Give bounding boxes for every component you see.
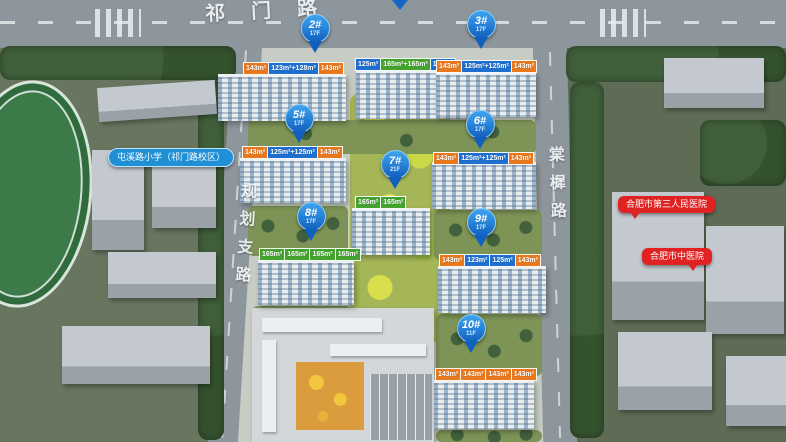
poi-label-hospital-tcm[interactable]: 合肥市中医院 xyxy=(642,248,712,265)
green-strip xyxy=(436,430,542,442)
area-tag[interactable]: 123m² xyxy=(464,254,490,267)
pin-building-9[interactable]: 9# 17F xyxy=(466,208,496,248)
building-9 xyxy=(438,266,546,313)
area-tag[interactable]: 143m² xyxy=(511,368,537,381)
tree-grove xyxy=(0,46,236,80)
hospital-building xyxy=(618,332,712,410)
pin-head: 9# 17F xyxy=(467,208,496,237)
pin-head: 7# 21F xyxy=(381,150,410,179)
pin-floors: 11F xyxy=(466,331,476,338)
hospital-building xyxy=(726,356,786,426)
pin-building-8[interactable]: 8# 17F xyxy=(296,202,326,242)
pin-building-10[interactable]: 10# 11F xyxy=(456,314,486,354)
area-tag[interactable]: 143m² xyxy=(439,254,465,267)
road-label-right: 棠樨路 xyxy=(542,146,569,231)
area-tags-building-8: 165m² 165m² 165m² 165m² xyxy=(260,248,361,261)
pin-floors: 17F xyxy=(475,127,485,134)
area-tag[interactable]: 143m² xyxy=(242,146,268,159)
building-2 xyxy=(218,74,346,121)
area-tag[interactable]: 165m² xyxy=(355,196,381,209)
kindergarten-roof xyxy=(262,340,276,432)
school-building xyxy=(62,326,210,384)
area-tags-building-7: 165m² 165m² xyxy=(356,196,406,209)
area-tags-building-10: 143m² 143m² 143m² 143m² xyxy=(436,368,537,381)
school-building xyxy=(152,158,216,228)
area-tag[interactable]: 165m² xyxy=(380,196,406,209)
pin-head: 6# 17F xyxy=(466,110,495,139)
area-tag[interactable]: 165m² xyxy=(309,248,335,261)
hospital-building xyxy=(664,58,764,108)
area-tag[interactable]: 165m²+165m² xyxy=(380,58,431,71)
area-tags-building-9: 143m² 123m² 125m² 143m² xyxy=(440,254,541,267)
pin-building-6[interactable]: 6# 17F xyxy=(465,110,495,150)
area-tags-building-6: 143m² 125m²+125m² 143m² xyxy=(434,152,534,165)
site-plan: 祁门路 规划支路 棠樨路 125m² 165m²+165m² 125m² xyxy=(0,0,786,442)
pin-building-2[interactable]: 2# 17F xyxy=(300,14,330,54)
pin-number: 9# xyxy=(475,214,487,225)
parking-lot xyxy=(370,374,432,440)
area-tag[interactable]: 165m² xyxy=(335,248,361,261)
area-tag[interactable]: 165m² xyxy=(259,248,285,261)
area-tag[interactable]: 143m² xyxy=(435,368,461,381)
pin-head: 5# 17F xyxy=(285,104,314,133)
tree-grove xyxy=(570,82,604,438)
building-6 xyxy=(432,162,536,209)
pin-building-1-tip[interactable] xyxy=(392,0,408,10)
area-tag[interactable]: 125m² xyxy=(489,254,515,267)
pin-head: 8# 17F xyxy=(297,202,326,231)
pin-floors: 17F xyxy=(310,31,320,38)
area-tag[interactable]: 125m² xyxy=(355,58,381,71)
poi-label-hospital-third-peoples[interactable]: 合肥市第三人民医院 xyxy=(618,196,715,213)
area-tag[interactable]: 143m² xyxy=(433,152,459,165)
pin-floors: 17F xyxy=(294,121,304,128)
pin-number: 5# xyxy=(293,110,305,121)
pin-tail xyxy=(474,235,488,247)
pin-building-7[interactable]: 7# 21F xyxy=(380,150,410,190)
area-tag[interactable]: 143m² xyxy=(508,152,534,165)
area-tag[interactable]: 143m² xyxy=(460,368,486,381)
pin-tail xyxy=(292,131,306,143)
tree-grove xyxy=(700,120,786,186)
pin-number: 6# xyxy=(474,116,486,127)
school-building xyxy=(108,252,216,298)
green-strip xyxy=(436,314,542,376)
building-8 xyxy=(258,260,354,305)
crosswalk-left xyxy=(95,9,141,37)
area-tag[interactable]: 143m² xyxy=(317,146,343,159)
area-tag[interactable]: 125m²+125m² xyxy=(458,152,509,165)
building-7 xyxy=(352,208,430,255)
area-tag[interactable]: 143m² xyxy=(515,254,541,267)
kindergarten-roof xyxy=(330,344,426,356)
pin-tail xyxy=(474,37,488,49)
pin-head: 2# 17F xyxy=(301,14,330,43)
pin-number: 2# xyxy=(309,20,321,31)
area-tags-building-3: 143m² 125m²+125m² 143m² xyxy=(437,60,537,73)
pin-building-5[interactable]: 5# 17F xyxy=(284,104,314,144)
pin-number: 3# xyxy=(475,16,487,27)
pin-floors: 17F xyxy=(306,219,316,226)
pin-number: 7# xyxy=(389,156,401,167)
area-tag[interactable]: 143m² xyxy=(318,62,344,75)
poi-label-school[interactable]: 屯溪路小学（祁门路校区） xyxy=(108,148,234,167)
area-tags-building-2: 143m² 123m²+128m² 143m² xyxy=(244,62,344,75)
area-tag[interactable]: 143m² xyxy=(485,368,511,381)
crosswalk-right xyxy=(600,9,646,37)
pin-number: 10# xyxy=(462,320,480,331)
area-tag[interactable]: 143m² xyxy=(243,62,269,75)
area-tag[interactable]: 143m² xyxy=(511,60,537,73)
pin-tail xyxy=(308,41,322,53)
hospital-building xyxy=(706,226,784,334)
pin-head: 10# 11F xyxy=(457,314,486,343)
area-tag[interactable]: 125m²+125m² xyxy=(461,60,512,73)
kindergarten-playground xyxy=(296,362,364,430)
pin-floors: 21F xyxy=(390,167,400,174)
area-tag[interactable]: 165m² xyxy=(284,248,310,261)
pin-tail xyxy=(388,177,402,189)
pin-number: 8# xyxy=(305,208,317,219)
area-tag[interactable]: 125m²+125m² xyxy=(267,146,318,159)
pin-head: 3# 17F xyxy=(467,10,496,39)
area-tag[interactable]: 143m² xyxy=(436,60,462,73)
area-tags-building-5: 143m² 125m²+125m² 143m² xyxy=(243,146,343,159)
pin-floors: 17F xyxy=(476,225,486,232)
kindergarten-roof xyxy=(262,318,382,332)
pin-tail xyxy=(464,341,478,353)
building-10 xyxy=(434,380,534,429)
pin-tail xyxy=(304,229,318,241)
pin-floors: 17F xyxy=(476,27,486,34)
pin-building-3[interactable]: 3# 17F xyxy=(466,10,496,50)
area-tag[interactable]: 123m²+128m² xyxy=(268,62,319,75)
pin-tail xyxy=(473,137,487,149)
